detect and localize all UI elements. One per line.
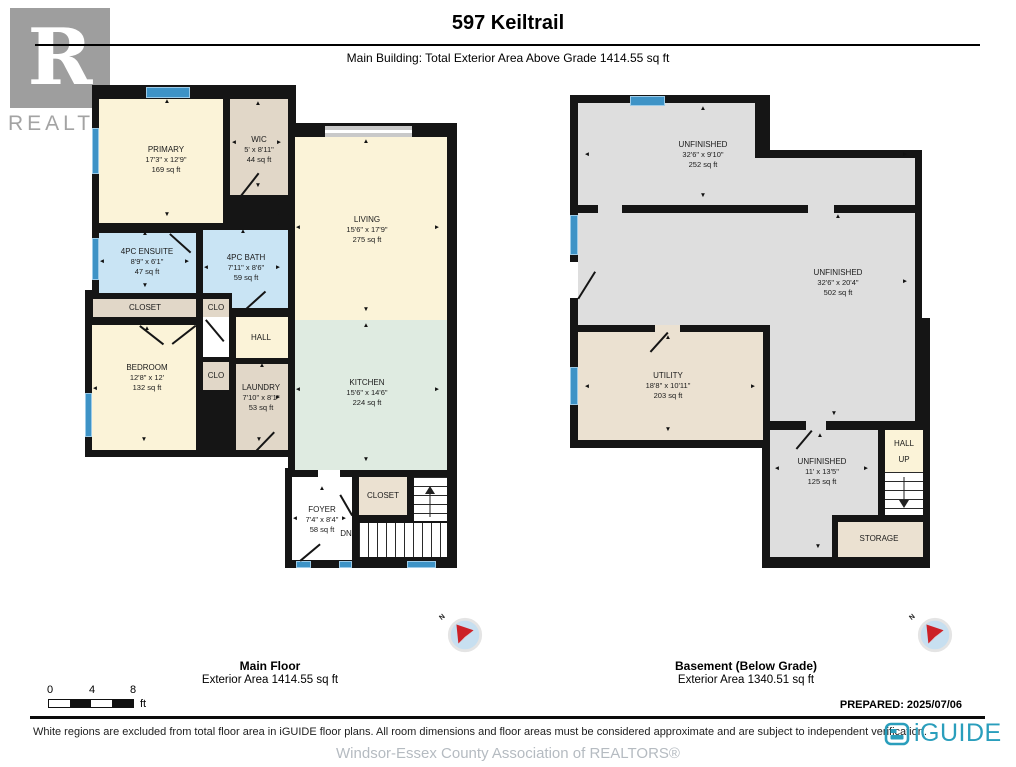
room-label: UNFINISHED32'6" x 9'10"252 sq ft <box>679 140 728 170</box>
room-dimensions: 32'6" x 20'4" <box>814 278 863 288</box>
dimension-marker: ▼ <box>700 193 706 200</box>
dimension-marker: ▼ <box>141 437 147 444</box>
scale-bar: 0 4 8 ft <box>48 684 134 708</box>
dimension-marker: ▼ <box>164 212 170 219</box>
plan-exterior-area: Exterior Area 1340.51 sq ft <box>675 674 817 686</box>
dimension-marker: ▼ <box>256 437 262 444</box>
room-name: BEDROOM <box>126 363 167 373</box>
room-dimensions: 8'9" x 6'1" <box>121 257 173 267</box>
dimension-marker: ◄ <box>292 516 298 523</box>
room-label: CLO <box>208 303 224 313</box>
dimension-marker: ◄ <box>584 152 590 159</box>
room-area-value: 53 sq ft <box>242 403 280 413</box>
dimension-marker: ▲ <box>363 323 369 330</box>
room-name: 4PC ENSUITE <box>121 247 173 257</box>
window <box>296 561 311 568</box>
window <box>146 87 190 98</box>
room-label: HALL <box>251 333 271 343</box>
room-label: DN <box>340 529 352 539</box>
room-area <box>578 158 915 205</box>
room-name: WIC <box>244 135 274 145</box>
dimension-marker: ► <box>434 225 440 232</box>
footer-divider <box>30 716 985 719</box>
room-area-value: 47 sq ft <box>121 267 173 277</box>
dimension-marker: ◄ <box>231 140 237 147</box>
dimension-marker: ► <box>434 387 440 394</box>
dimension-marker: ◄ <box>774 466 780 473</box>
room-area <box>770 325 915 421</box>
room-dimensions: 32'6" x 9'10" <box>679 150 728 160</box>
room-area-value: 44 sq ft <box>244 155 274 165</box>
iguide-icon <box>884 721 910 747</box>
room-area <box>655 325 680 332</box>
stairs <box>359 523 447 557</box>
room-dimensions: 11' x 13'5" <box>798 467 847 477</box>
dimension-marker: ▲ <box>665 335 671 342</box>
room-area-value: 252 sq ft <box>679 160 728 170</box>
window <box>339 561 352 568</box>
dimension-marker: ▲ <box>144 326 150 333</box>
dimension-marker: ► <box>902 279 908 286</box>
scale-tick: 0 <box>47 684 53 696</box>
room-name: UP <box>898 455 909 465</box>
room-dimensions: 15'6" x 17'9" <box>346 225 387 235</box>
room-area-value: 203 sq ft <box>646 391 691 401</box>
room-name: 4PC BATH <box>227 253 266 263</box>
dimension-marker: ▲ <box>817 433 823 440</box>
association-watermark: Windsor-Essex County Association of REAL… <box>0 745 1016 762</box>
window <box>92 128 99 174</box>
iguide-logo: iGUIDE <box>884 719 1002 748</box>
dimension-marker: ► <box>276 140 282 147</box>
room-name: CLO <box>208 371 224 381</box>
room-area <box>885 430 923 472</box>
room-area <box>598 205 622 213</box>
room-label: LAUNDRY7'10" x 8'1"53 sq ft <box>242 383 280 413</box>
room-label: CLO <box>208 371 224 381</box>
room-area-value: 224 sq ft <box>346 398 387 408</box>
room-area-value: 59 sq ft <box>227 273 266 283</box>
plan-title: Main Floor <box>202 658 338 674</box>
room-name: FOYER <box>306 505 339 515</box>
dimension-marker: ▲ <box>142 231 148 238</box>
dimension-marker: ▼ <box>363 457 369 464</box>
room-label: STORAGE <box>860 534 899 544</box>
dimension-marker: ▲ <box>363 139 369 146</box>
page-subtitle: Main Building: Total Exterior Area Above… <box>0 51 1016 65</box>
room-name: DN <box>340 529 352 539</box>
dimension-marker: ► <box>863 466 869 473</box>
title-divider <box>35 44 980 46</box>
scale-bar-ticks: 0 4 8 <box>48 684 134 697</box>
plan-caption: Main FloorExterior Area 1414.55 sq ft <box>202 658 338 686</box>
room-area <box>578 213 915 325</box>
scale-tick: 8 <box>130 684 136 696</box>
dimension-marker: ▲ <box>164 99 170 106</box>
disclaimer-text: White regions are excluded from total fl… <box>33 726 927 738</box>
window <box>85 393 92 437</box>
dimension-marker: ▲ <box>319 486 325 493</box>
room-label: HALL <box>894 439 914 449</box>
room-name: UTILITY <box>646 371 691 381</box>
dimension-marker: ◄ <box>584 384 590 391</box>
room-area <box>318 470 340 478</box>
room-label: BEDROOM12'8" x 12'132 sq ft <box>126 363 167 393</box>
room-dimensions: 12'8" x 12' <box>126 373 167 383</box>
stair-direction-arrow <box>898 472 910 512</box>
room-name: LIVING <box>346 215 387 225</box>
room-label: CLOSET <box>367 491 399 501</box>
stair-direction-arrow <box>424 482 436 522</box>
room-label: UTILITY18'8" x 10'11"203 sq ft <box>646 371 691 401</box>
room-name: UNFINISHED <box>679 140 728 150</box>
room-area <box>570 262 578 298</box>
sliding-door <box>325 126 412 137</box>
room-name: LAUNDRY <box>242 383 280 393</box>
dimension-marker: ▼ <box>815 544 821 551</box>
dimension-marker: ◄ <box>295 387 301 394</box>
room-dimensions: 7'4" x 8'4" <box>306 515 339 525</box>
window <box>407 561 436 568</box>
room-area-value: 502 sq ft <box>814 288 863 298</box>
dimension-marker: ▼ <box>363 307 369 314</box>
prepared-date: PREPARED: 2025/07/06 <box>840 699 962 711</box>
page-title: 597 Keiltrail <box>0 12 1016 35</box>
room-label: FOYER7'4" x 8'4"58 sq ft <box>306 505 339 535</box>
room-name: UNFINISHED <box>814 268 863 278</box>
room-label: WIC5' x 8'11"44 sq ft <box>244 135 274 165</box>
dimension-marker: ▼ <box>255 183 261 190</box>
room-name: CLO <box>208 303 224 313</box>
room-name: KITCHEN <box>346 378 387 388</box>
dimension-marker: ◄ <box>203 265 209 272</box>
room-label: CLOSET <box>129 303 161 313</box>
dimension-marker: ◄ <box>99 259 105 266</box>
compass-icon <box>446 616 484 654</box>
dimension-marker: ◄ <box>92 386 98 393</box>
room-area <box>808 205 834 213</box>
plan-exterior-area: Exterior Area 1414.55 sq ft <box>202 674 338 686</box>
room-dimensions: 7'11" x 8'6" <box>227 263 266 273</box>
room-label: UNFINISHED11' x 13'5"125 sq ft <box>798 457 847 487</box>
dimension-marker: ▲ <box>255 101 261 108</box>
room-name: HALL <box>251 333 271 343</box>
dimension-marker: ▲ <box>835 214 841 221</box>
scale-bar-rule <box>48 699 134 708</box>
room-name: UNFINISHED <box>798 457 847 467</box>
compass-icon <box>916 616 954 654</box>
room-label: UNFINISHED32'6" x 20'4"502 sq ft <box>814 268 863 298</box>
room-label: KITCHEN15'6" x 14'6"224 sq ft <box>346 378 387 408</box>
dimension-marker: ▼ <box>142 283 148 290</box>
dimension-marker: ◄ <box>295 225 301 232</box>
room-label: PRIMARY17'3" x 12'9"169 sq ft <box>145 145 186 175</box>
room-area <box>806 421 826 430</box>
dimension-marker: ► <box>341 516 347 523</box>
room-area-value: 132 sq ft <box>126 383 167 393</box>
dimension-marker: ▲ <box>259 363 265 370</box>
room-dimensions: 17'3" x 12'9" <box>145 155 186 165</box>
room-name: CLOSET <box>367 491 399 501</box>
room-name: PRIMARY <box>145 145 186 155</box>
room-area-value: 58 sq ft <box>306 525 339 535</box>
room-label: 4PC ENSUITE8'9" x 6'1"47 sq ft <box>121 247 173 277</box>
room-area <box>770 430 832 557</box>
window <box>570 367 578 405</box>
iguide-wordmark: iGUIDE <box>914 719 1002 748</box>
room-label: 4PC BATH7'11" x 8'6"59 sq ft <box>227 253 266 283</box>
dimension-marker: ▼ <box>665 427 671 434</box>
room-name: STORAGE <box>860 534 899 544</box>
room-area-value: 275 sq ft <box>346 235 387 245</box>
room-dimensions: 5' x 8'11" <box>244 145 274 155</box>
plan-title: Basement (Below Grade) <box>675 658 817 674</box>
room-dimensions: 7'10" x 8'1" <box>242 393 280 403</box>
room-label: LIVING15'6" x 17'9"275 sq ft <box>346 215 387 245</box>
plan-caption: Basement (Below Grade)Exterior Area 1340… <box>675 658 817 686</box>
room-area <box>578 103 755 158</box>
room-name: HALL <box>894 439 914 449</box>
scale-tick: 4 <box>89 684 95 696</box>
window <box>570 215 578 255</box>
room-area-value: 125 sq ft <box>798 477 847 487</box>
room-dimensions: 18'8" x 10'11" <box>646 381 691 391</box>
dimension-marker: ► <box>275 265 281 272</box>
dimension-marker: ▲ <box>240 229 246 236</box>
room-area-value: 169 sq ft <box>145 165 186 175</box>
room-dimensions: 15'6" x 14'6" <box>346 388 387 398</box>
dimension-marker: ▲ <box>700 106 706 113</box>
dimension-marker: ▼ <box>831 411 837 418</box>
dimension-marker: ► <box>750 384 756 391</box>
room-label: UP <box>898 455 909 465</box>
room-name: CLOSET <box>129 303 161 313</box>
dimension-marker: ► <box>902 152 908 159</box>
window <box>630 96 665 106</box>
scale-unit: ft <box>140 698 146 710</box>
floorplan-page: R REALTOR® 597 Keiltrail Main Building: … <box>0 0 1016 767</box>
dimension-marker: ► <box>184 259 190 266</box>
